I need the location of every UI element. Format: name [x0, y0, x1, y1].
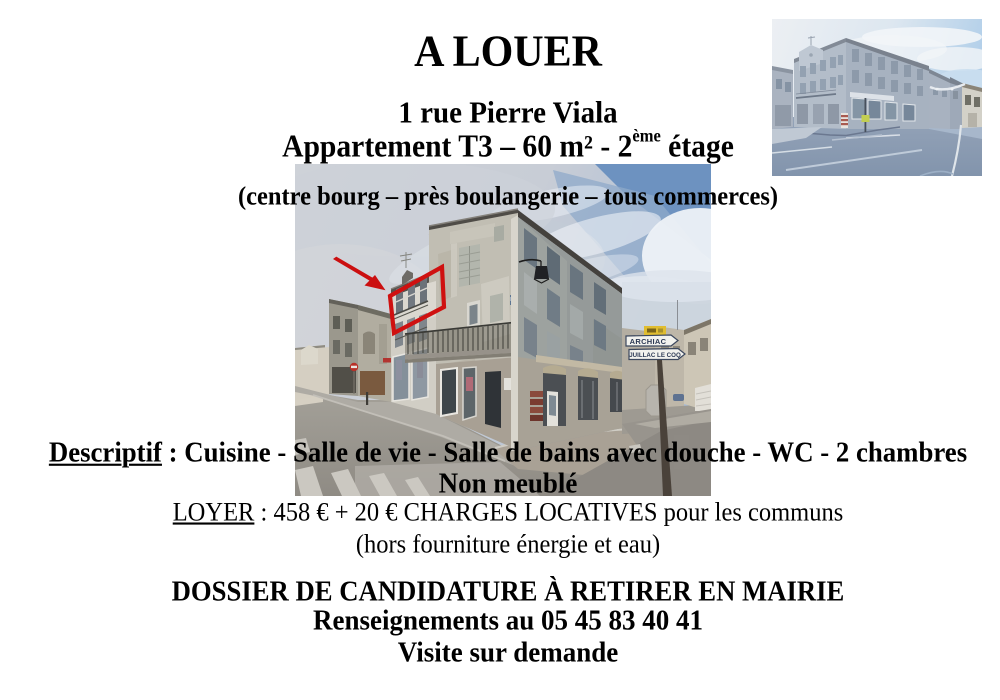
svg-text:ARCHIAC: ARCHIAC	[630, 337, 667, 346]
svg-text:JUILLAC LE COQ: JUILLAC LE COQ	[629, 352, 681, 359]
